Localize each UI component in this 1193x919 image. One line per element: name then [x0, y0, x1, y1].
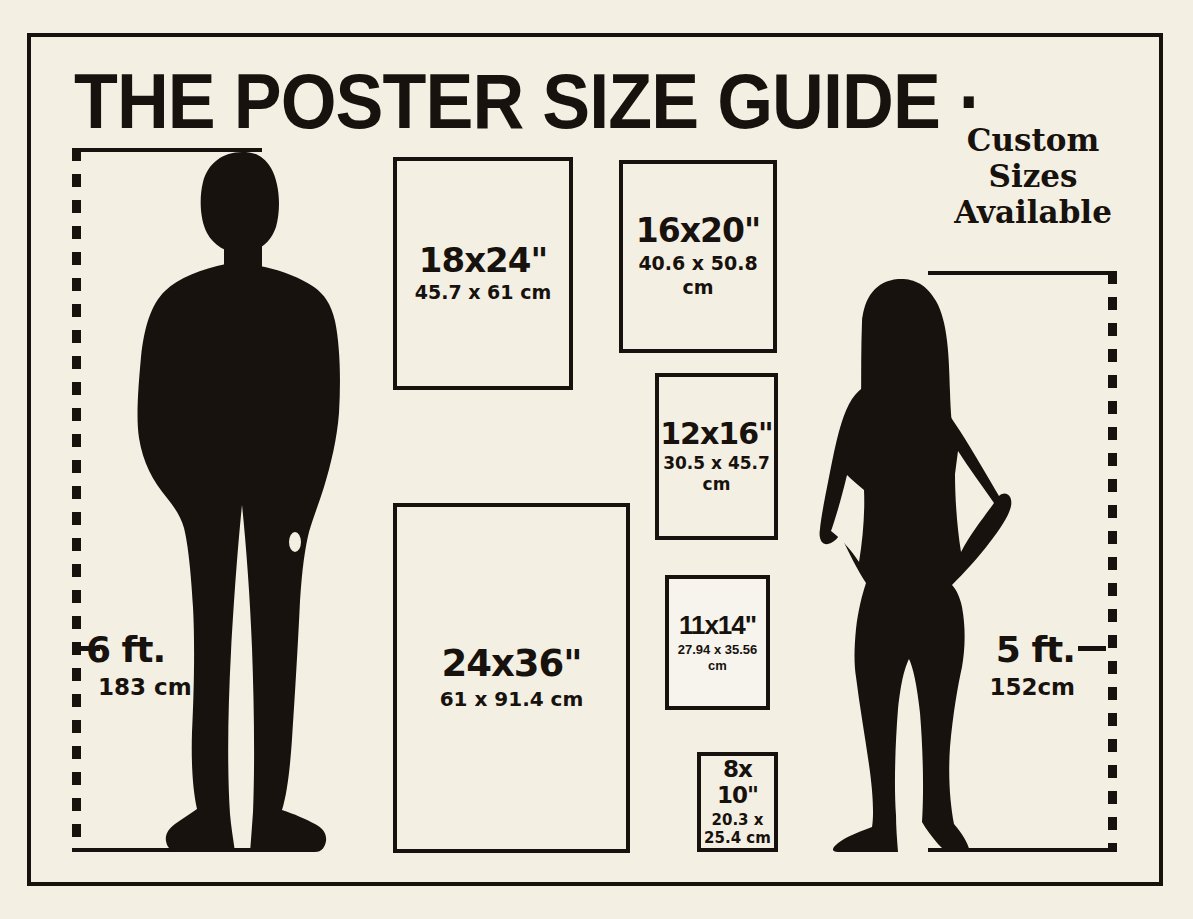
poster-size-label: 16x20" — [636, 213, 760, 249]
right-measure-dashed-line — [1108, 271, 1117, 852]
poster-size-label: 11x14" — [679, 611, 756, 639]
poster-box-8x10: 8x 10" 20.3 x 25.4 cm — [697, 752, 778, 852]
poster-metric-label: 61 x 91.4 cm — [440, 687, 584, 712]
left-measure-dashed-line — [72, 148, 81, 852]
poster-box-11x14: 11x14" 27.94 x 35.56 cm — [665, 575, 770, 710]
poster-size-label: 18x24" — [419, 242, 547, 279]
poster-metric-label: 27.94 x 35.56 cm — [669, 642, 766, 675]
poster-metric-label: 40.6 x 50.8 cm — [623, 252, 773, 300]
custom-sizes-note: Custom Sizes Available — [948, 122, 1118, 230]
man-silhouette — [130, 150, 340, 852]
poster-box-18x24: 18x24" 45.7 x 61 cm — [393, 157, 573, 390]
poster-metric-label: 30.5 x 45.7 cm — [659, 453, 774, 496]
poster-metric-label: 45.7 x 61 cm — [415, 281, 551, 305]
custom-sizes-line: Available — [948, 194, 1118, 230]
custom-sizes-line: Custom — [948, 122, 1118, 158]
poster-size-line: 10" — [717, 782, 758, 808]
poster-metric-line: 20.3 x — [704, 811, 771, 830]
right-measure-tick — [1078, 646, 1106, 651]
poster-box-24x36: 24x36" 61 x 91.4 cm — [393, 503, 630, 853]
poster-size-label: 12x16" — [660, 418, 772, 450]
custom-sizes-line: Sizes — [948, 158, 1118, 194]
poster-size-line: 8x — [717, 756, 758, 782]
poster-size-label: 24x36" — [441, 644, 581, 684]
page-title: THE POSTER SIZE GUIDE · — [74, 56, 982, 147]
right-measure-top-cap — [928, 271, 1117, 275]
poster-box-16x20: 16x20" 40.6 x 50.8 cm — [619, 160, 777, 353]
woman-silhouette — [812, 277, 1018, 852]
poster-metric-line: 25.4 cm — [704, 829, 771, 848]
poster-box-12x16: 12x16" 30.5 x 45.7 cm — [655, 373, 778, 540]
